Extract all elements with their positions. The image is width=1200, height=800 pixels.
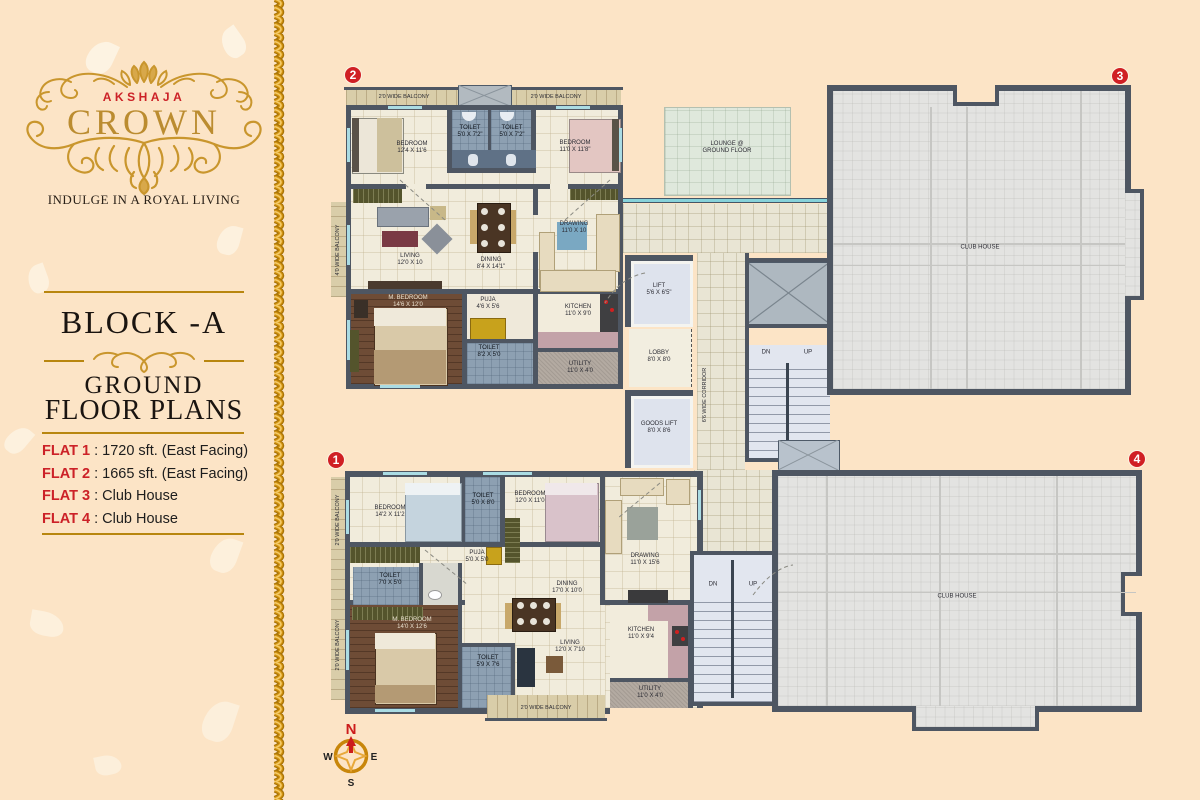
- svg-text:N: N: [346, 722, 357, 738]
- svg-text:S: S: [348, 778, 355, 789]
- svg-text:W: W: [323, 752, 333, 763]
- svg-text:E: E: [371, 752, 378, 763]
